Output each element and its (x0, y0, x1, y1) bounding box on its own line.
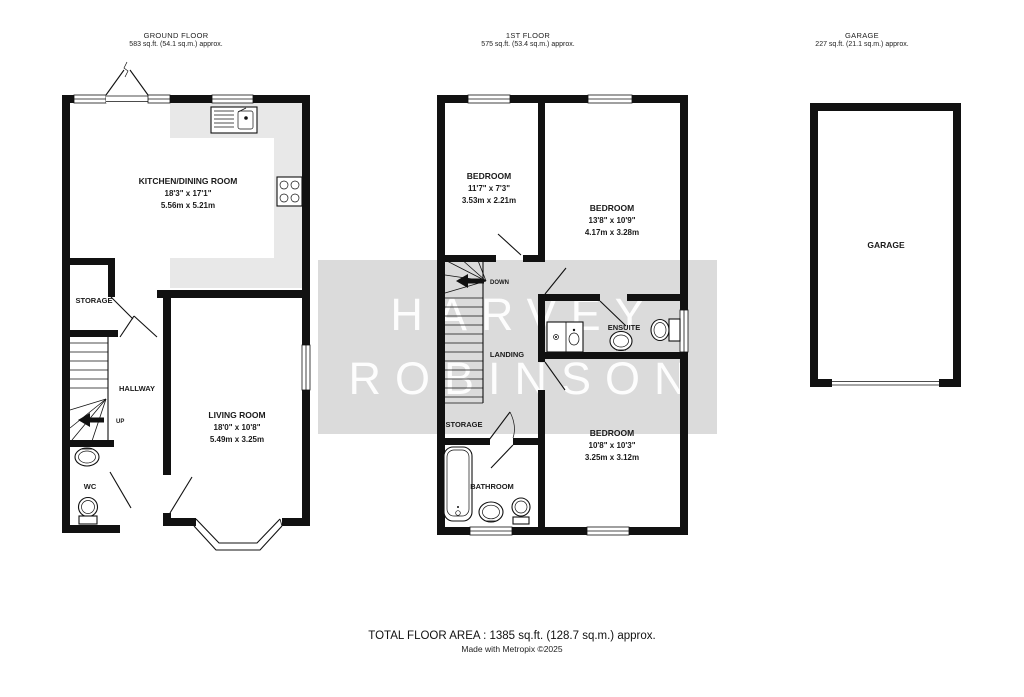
kitchen-window-left (74, 95, 106, 103)
shower-icon (547, 322, 583, 352)
total-floor-area: TOTAL FLOOR AREA : 1385 sq.ft. (128.7 sq… (0, 630, 1024, 642)
bedroom3-imperial: 10'8" x 10'3" (589, 441, 636, 450)
bedroom3-metric: 3.25m x 3.12m (585, 453, 639, 462)
ground-floor-walls (62, 95, 310, 533)
ensuite-window (680, 310, 688, 352)
first-floor-plan: BEDROOM 11'7" x 7'3" 3.53m x 2.21m BEDRO… (437, 95, 688, 535)
bedroom2-metric: 4.17m x 3.28m (585, 228, 639, 237)
kitchen-label: KITCHEN/DINING ROOM (139, 176, 238, 186)
sink-icon (211, 107, 257, 133)
metropix-credit: Made with Metropix ©2025 (0, 644, 1024, 654)
ensuite-toilet-icon (651, 319, 680, 341)
living-room-metric: 5.49m x 3.25m (210, 435, 264, 444)
storage-door-icon (111, 297, 133, 319)
french-doors-icon (106, 62, 148, 103)
bedroom1-label: BEDROOM (467, 171, 511, 181)
ensuite-basin-icon (610, 332, 632, 351)
living-room-label: LIVING ROOM (208, 410, 265, 420)
stairs-down-label: DOWN (490, 280, 509, 286)
bedroom1-door-icon (498, 234, 521, 255)
bedroom2-window (588, 95, 632, 103)
first-floor-walls (437, 95, 688, 535)
floorplan-drawing: KITCHEN/DINING ROOM 18'3" x 17'1" 5.56m … (0, 0, 1024, 697)
bathroom-door-icon (491, 445, 513, 468)
bedroom1-metric: 3.53m x 2.21m (462, 196, 516, 205)
bedroom1-imperial: 11'7" x 7'3" (468, 184, 510, 193)
bath-icon (444, 447, 472, 521)
stairs-up-label: UP (116, 419, 124, 425)
wc-door-icon (110, 472, 131, 508)
kitchen-metric: 5.56m x 5.21m (161, 201, 215, 210)
footer: TOTAL FLOOR AREA : 1385 sq.ft. (128.7 sq… (0, 630, 1024, 654)
kitchen-imperial: 18'3" x 17'1" (165, 189, 212, 198)
bathroom-basin-icon (479, 502, 503, 522)
ensuite-label: ENSUITE (608, 323, 641, 332)
bedroom3-door-icon (545, 362, 565, 390)
hob-icon (277, 177, 302, 206)
bathroom-window (470, 527, 512, 535)
wc-label: WC (84, 482, 97, 491)
bedroom2-door-icon (545, 268, 566, 294)
bedroom3-window (587, 527, 629, 535)
living-room-window (302, 345, 310, 390)
living-room-door-icon (170, 477, 192, 513)
storage-gf-label: STORAGE (76, 296, 113, 305)
storage-ff-door-icon (489, 412, 514, 440)
stairs-up-icon (70, 337, 108, 441)
kitchen-window-sink (212, 95, 253, 103)
hallway-kitchen-door-icon (120, 316, 157, 337)
storage-ff-label: STORAGE (446, 420, 483, 429)
wc-basin-icon (75, 448, 99, 466)
ground-floor-plan: KITCHEN/DINING ROOM 18'3" x 17'1" 5.56m … (62, 62, 310, 550)
garage-door-icon (832, 382, 939, 386)
kitchen-window-mid (148, 95, 170, 103)
living-room-imperial: 18'0" x 10'8" (214, 423, 261, 432)
bathroom-label: BATHROOM (470, 482, 514, 491)
landing-label: LANDING (490, 350, 524, 359)
bedroom2-imperial: 13'8" x 10'9" (589, 216, 636, 225)
bedroom1-window (468, 95, 510, 103)
bay-window-icon (194, 519, 282, 550)
garage-plan: GARAGE (810, 103, 961, 387)
wc-toilet-icon (79, 498, 98, 525)
bedroom2-label: BEDROOM (590, 203, 634, 213)
hallway-label: HALLWAY (119, 384, 155, 393)
stairs-down-icon (445, 258, 486, 403)
garage-label: GARAGE (867, 240, 905, 250)
bathroom-toilet-icon (512, 498, 530, 524)
bedroom3-label: BEDROOM (590, 428, 634, 438)
